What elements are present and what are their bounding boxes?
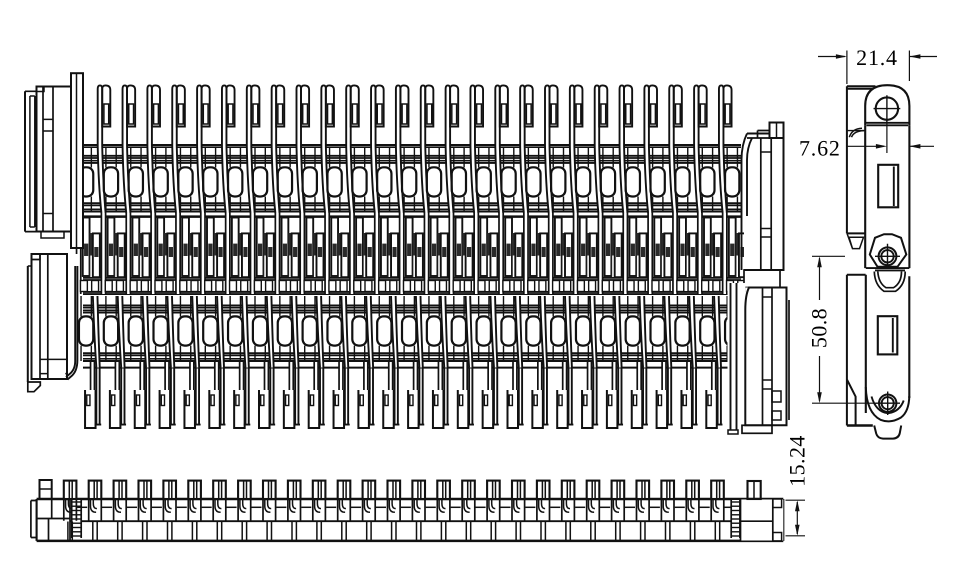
svg-text:50.8: 50.8 bbox=[807, 308, 832, 348]
svg-text:21.4: 21.4 bbox=[856, 45, 898, 70]
svg-text:7.62: 7.62 bbox=[799, 136, 841, 161]
svg-text:15.24: 15.24 bbox=[785, 435, 810, 487]
